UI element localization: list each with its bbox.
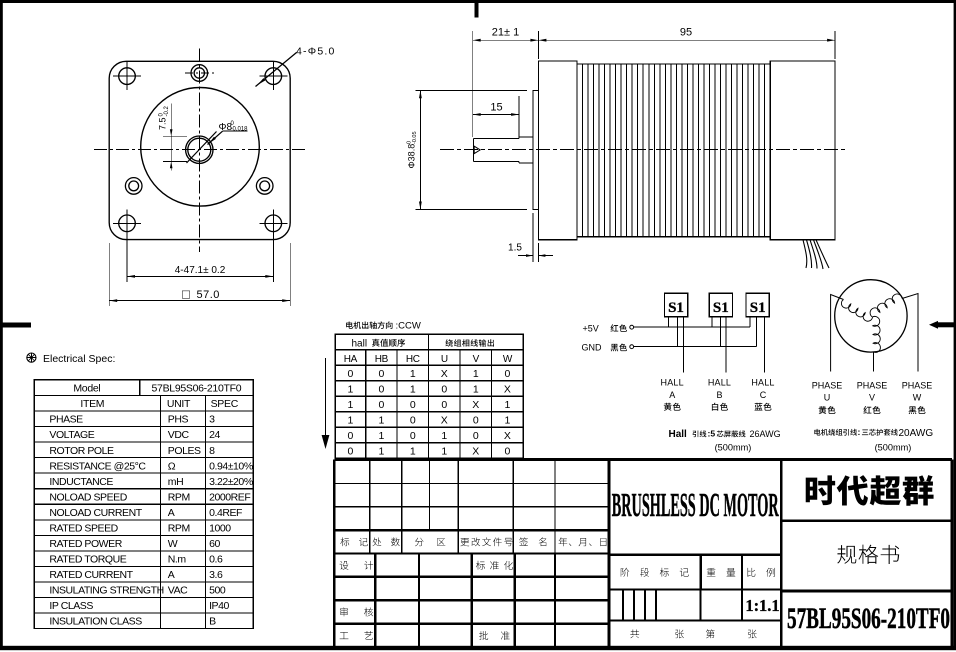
svg-text:RATED POWER: RATED POWER [49, 538, 122, 550]
svg-text:500: 500 [209, 585, 226, 597]
svg-text:PHASE: PHASE [49, 414, 83, 426]
svg-text:HALL: HALL [751, 378, 774, 388]
svg-text:X: X [504, 430, 511, 442]
svg-text:0: 0 [504, 446, 510, 458]
svg-text:1: 1 [378, 415, 384, 427]
svg-text:1: 1 [410, 368, 416, 380]
svg-text:A: A [168, 569, 175, 581]
svg-text:8: 8 [209, 445, 215, 457]
svg-text:1: 1 [410, 446, 416, 458]
svg-text:1: 1 [347, 399, 353, 411]
svg-text:1: 1 [441, 446, 447, 458]
svg-text:□: □ [182, 286, 190, 301]
svg-text:mH: mH [168, 476, 183, 488]
svg-text:VOLTAGE: VOLTAGE [49, 429, 94, 441]
svg-text:PHASE: PHASE [902, 380, 933, 390]
svg-text:C: C [760, 390, 767, 400]
svg-text:4-Φ5.0: 4-Φ5.0 [296, 46, 336, 58]
svg-text:1: 1 [347, 415, 353, 427]
svg-text:Electrical Spec:: Electrical Spec: [43, 353, 115, 365]
svg-text:S1: S1 [668, 300, 684, 316]
svg-text::CCW: :CCW [396, 321, 421, 332]
svg-text:RATED CURRENT: RATED CURRENT [49, 569, 133, 581]
svg-text:B: B [209, 616, 216, 628]
svg-text:1: 1 [473, 368, 479, 380]
svg-text:B: B [716, 390, 722, 400]
svg-text:-0.018: -0.018 [231, 127, 249, 133]
svg-text:RESISTANCE @25°C: RESISTANCE @25°C [49, 460, 146, 472]
svg-text:X: X [472, 446, 479, 458]
svg-text:Φ38.8: Φ38.8 [407, 144, 417, 169]
svg-text:PHASE: PHASE [857, 380, 888, 390]
svg-text:W: W [168, 538, 178, 550]
svg-text::: : [858, 427, 861, 437]
svg-text:20AWG: 20AWG [899, 428, 934, 439]
svg-text:BRUSHLESS DC MOTOR: BRUSHLESS DC MOTOR [612, 487, 779, 524]
svg-text:0: 0 [378, 368, 384, 380]
svg-text:1: 1 [347, 384, 353, 396]
svg-text:X: X [441, 368, 448, 380]
svg-text:V: V [473, 354, 480, 365]
svg-text:15: 15 [490, 101, 502, 113]
svg-text:hall: hall [352, 338, 368, 349]
svg-text:Model: Model [73, 383, 100, 395]
svg-text:1: 1 [441, 430, 447, 442]
svg-text:4-47.1± 0.2: 4-47.1± 0.2 [175, 265, 226, 276]
svg-text:PHS: PHS [168, 414, 189, 426]
svg-text:0.94±10%: 0.94±10% [209, 460, 253, 472]
svg-text:1: 1 [410, 384, 416, 396]
svg-text:A: A [168, 507, 175, 519]
svg-text:1: 1 [504, 399, 510, 411]
svg-text:INSULATION CLASS: INSULATION CLASS [49, 616, 142, 628]
svg-text:0: 0 [504, 368, 510, 380]
svg-text:HALL: HALL [708, 378, 731, 388]
svg-text:0: 0 [473, 430, 479, 442]
svg-text:1:1.1: 1:1.1 [745, 596, 779, 615]
svg-text:Ω: Ω [168, 460, 176, 472]
svg-text:0: 0 [347, 368, 353, 380]
svg-text:RPM: RPM [168, 523, 190, 535]
svg-text:21± 1: 21± 1 [492, 27, 519, 39]
svg-text:ROTOR POLE: ROTOR POLE [49, 445, 114, 457]
svg-text:26AWG: 26AWG [750, 429, 781, 439]
svg-text:+5V: +5V [583, 323, 599, 333]
svg-text::5: :5 [708, 429, 716, 439]
svg-text:0: 0 [441, 384, 447, 396]
svg-text:0: 0 [347, 446, 353, 458]
svg-text:RATED SPEED: RATED SPEED [49, 523, 118, 535]
svg-text:0: 0 [410, 415, 416, 427]
svg-text:3.22±20%: 3.22±20% [209, 476, 253, 488]
svg-text:S1: S1 [713, 300, 729, 316]
svg-text:24: 24 [209, 429, 220, 441]
svg-text:X: X [441, 415, 448, 427]
svg-text:1.5: 1.5 [508, 243, 522, 254]
svg-text:-0.05: -0.05 [412, 131, 418, 144]
svg-text:VAC: VAC [168, 585, 188, 597]
svg-text:0: 0 [378, 384, 384, 396]
svg-text:RPM: RPM [168, 491, 190, 503]
svg-text:VDC: VDC [168, 429, 190, 441]
svg-text:Hall: Hall [669, 429, 688, 440]
svg-text:RATED TORQUE: RATED TORQUE [49, 554, 126, 566]
svg-text:HALL: HALL [661, 378, 684, 388]
svg-text:X: X [472, 399, 479, 411]
svg-text:60: 60 [209, 538, 220, 550]
svg-text:X: X [504, 384, 511, 396]
svg-text:2000REF: 2000REF [209, 491, 250, 503]
svg-text:3: 3 [209, 414, 215, 426]
svg-text:W: W [503, 354, 513, 365]
svg-text:3.6: 3.6 [209, 569, 223, 581]
svg-text:57BL95S06-210TF0: 57BL95S06-210TF0 [152, 383, 242, 395]
svg-text:A: A [669, 390, 675, 400]
svg-text:NOLOAD CURRENT: NOLOAD CURRENT [49, 507, 142, 519]
svg-text:NOLOAD SPEED: NOLOAD SPEED [49, 491, 127, 503]
svg-text:HA: HA [344, 354, 358, 365]
svg-text:(500mm): (500mm) [715, 442, 752, 452]
svg-text:0.4REF: 0.4REF [209, 507, 242, 519]
svg-text:PHASE: PHASE [812, 380, 843, 390]
svg-text:W: W [913, 393, 922, 403]
svg-text:0: 0 [378, 399, 384, 411]
svg-text:0: 0 [410, 430, 416, 442]
svg-text:-0.2: -0.2 [164, 105, 170, 116]
svg-text:1000: 1000 [209, 523, 231, 535]
svg-text:INSULATING STRENGTH: INSULATING STRENGTH [49, 585, 163, 597]
svg-text:IP40: IP40 [209, 600, 229, 612]
svg-text:POLES: POLES [168, 445, 201, 457]
svg-text:ITEM: ITEM [80, 398, 104, 410]
svg-text:HB: HB [375, 354, 389, 365]
svg-text:N.m: N.m [168, 554, 187, 566]
svg-text:(500mm): (500mm) [875, 442, 912, 452]
svg-text:0: 0 [473, 415, 479, 427]
svg-text:U: U [824, 393, 831, 403]
svg-text:IP CLASS: IP CLASS [49, 600, 93, 612]
svg-text:1: 1 [473, 384, 479, 396]
svg-text:1: 1 [378, 446, 384, 458]
svg-text:SPEC: SPEC [211, 398, 239, 410]
svg-text:1: 1 [378, 430, 384, 442]
svg-text:0: 0 [410, 399, 416, 411]
svg-text:HC: HC [406, 354, 420, 365]
svg-text:INDUCTANCE: INDUCTANCE [49, 476, 113, 488]
svg-text:57.0: 57.0 [197, 289, 220, 301]
svg-text:57BL95S06-210TF0: 57BL95S06-210TF0 [787, 602, 950, 635]
svg-text:7.5: 7.5 [158, 117, 168, 130]
svg-text:UNIT: UNIT [167, 398, 191, 410]
svg-text:0: 0 [441, 399, 447, 411]
svg-text:GND: GND [582, 343, 603, 353]
svg-text:1: 1 [504, 415, 510, 427]
svg-text:S1: S1 [750, 300, 766, 316]
svg-text:0.6: 0.6 [209, 554, 223, 566]
svg-text:V: V [869, 393, 875, 403]
svg-text:95: 95 [680, 27, 692, 39]
svg-text:U: U [441, 354, 448, 365]
svg-text:0: 0 [347, 430, 353, 442]
